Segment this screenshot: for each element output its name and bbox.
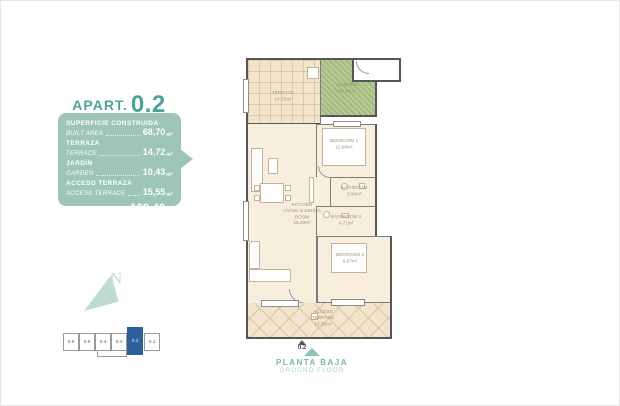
fixture-toilet [323,211,330,218]
furniture-chair [254,185,260,191]
floor-marker-icon [304,348,320,356]
furniture-dining-table [260,183,284,203]
area-row-terrace: TERRAZA TERRACE 14,72 m² [66,140,173,158]
label-bathroom1: BATHROOM3.00m² [341,186,368,198]
label-bathroom2: BATHROOM 24.71m² [331,215,362,227]
area-summary-panel: SUPERFICIE CONSTRUIDA BUILT AREA 68,70 m… [58,113,181,206]
area-unit: m² [166,132,173,138]
label-terrace: TERRACE14.72m² [272,91,294,103]
area-row-access-terrace: ACCESO TERRAZA ACCESS TERRACE 15,55 m² [66,180,173,198]
area-value: 15,55 [143,188,166,198]
area-row-total: TOTAL 109,40 m² [66,203,173,216]
window [243,79,249,113]
apartment-title-prefix: APART. [72,97,128,113]
area-label-en: BUILT AREA [66,131,103,138]
window [333,121,361,127]
dotted-leader [94,212,127,214]
furniture-chair [285,185,291,191]
area-value: 10,43 [143,168,166,178]
floor-name-es: PLANTA BAJA [276,358,348,367]
label-bedroom1: BEDROOM 111.09m² [330,139,358,151]
total-value: 109,40 [130,203,165,216]
north-letter: N [110,269,122,289]
key-unit-0-4: 0.4 [95,333,111,351]
window [331,299,365,306]
floor-plan-page: APART.0.2 SUPERFICIE CONSTRUIDA BUILT AR… [0,0,620,406]
area-row-built: SUPERFICIE CONSTRUIDA BUILT AREA 68,70 m… [66,120,173,138]
area-unit: m² [166,152,173,158]
panel-arrow-icon [180,149,193,169]
furniture-chair [254,195,260,201]
area-label-en: ACCESS TERRACE [66,191,125,198]
key-unit-0-6: 0.6 [63,333,79,351]
furniture-terrace-table [307,67,319,79]
key-unit-0-3: 0.3 [111,333,127,351]
total-unit: m² [166,210,173,216]
area-unit: m² [166,172,173,178]
dotted-leader [106,134,139,136]
key-unit-0-5: 0.5 [79,333,95,351]
north-compass: N [84,271,136,311]
label-living: KITCHEN LIVING & DINING ROOM 36.29m² [283,203,320,227]
label-access-terrace: ACCESS TERRACE 15.55m² [312,310,334,328]
key-unit-0-1: 0.1 [144,333,160,351]
furniture-chair [285,195,291,201]
label-bedroom2: BEDROOM 28.87m² [336,253,364,265]
area-value: 68,70 [143,128,166,138]
key-unit-0-2-highlighted: 0.2 [127,327,143,355]
window [261,300,299,307]
dotted-leader [128,194,140,196]
dotted-leader [100,154,140,156]
label-garden: GARDEN10.43m² [337,83,357,95]
building-outline-stub [97,350,127,357]
furniture-tv-unit [309,177,314,203]
window [243,201,249,241]
total-label: TOTAL [66,208,91,216]
dotted-leader [96,174,139,176]
area-value: 14,72 [143,148,166,158]
floor-name-en: GROUND FLOOR [279,367,344,374]
area-label-en: GARDEN [66,171,93,178]
area-unit: m² [166,192,173,198]
building-key-plan: 0.6 0.5 0.4 0.3 0.2 0.1 [61,327,167,359]
furniture-coffee-table [268,158,278,174]
furniture-kitchen-column [249,241,260,269]
area-row-garden: JARDÍN GARDEN 10,43 m² [66,160,173,178]
furniture-kitchen-counter [249,269,291,282]
area-label-en: TERRACE [66,151,97,158]
